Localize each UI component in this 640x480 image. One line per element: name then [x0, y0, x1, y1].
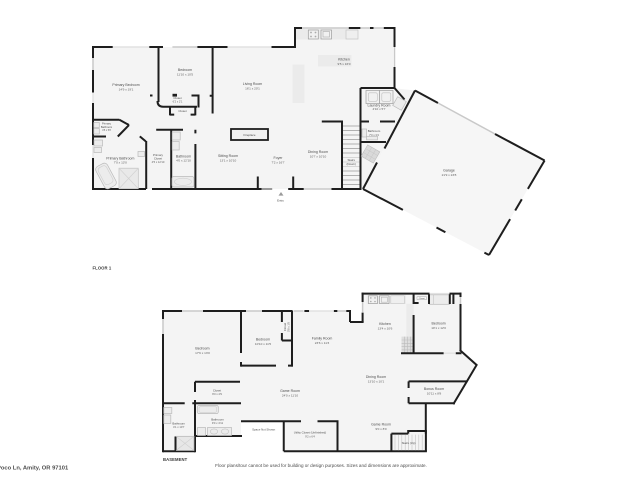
svg-text:Bathroom: Bathroom [211, 417, 224, 421]
svg-text:17'6 x 13'0: 17'6 x 13'0 [195, 351, 210, 355]
svg-text:13'4 x 10'6: 13'4 x 10'6 [378, 327, 393, 331]
svg-text:13'10 x 10'1: 13'10 x 10'1 [368, 380, 385, 384]
svg-text:Floor plans/tour cannot be use: Floor plans/tour cannot be used for buil… [215, 463, 427, 468]
svg-text:Dining Room: Dining Room [366, 375, 386, 379]
svg-text:10'7 x 10'10: 10'7 x 10'10 [310, 155, 327, 159]
svg-text:13'1 x 10'10: 13'1 x 10'10 [220, 159, 237, 163]
svg-text:Sitting Room: Sitting Room [218, 154, 238, 158]
svg-text:Primary Bedroom: Primary Bedroom [112, 83, 139, 87]
svg-text:Closet: Closet [213, 388, 221, 392]
svg-text:Bedroom: Bedroom [195, 347, 209, 351]
svg-text:Kitchen: Kitchen [338, 58, 350, 62]
svg-text:10'10 x 11'5: 10'10 x 11'5 [255, 342, 272, 346]
svg-text:14'9 x 19'1: 14'9 x 19'1 [119, 88, 134, 92]
svg-text:Bonus Room: Bonus Room [424, 387, 444, 391]
svg-text:Bedroom: Bedroom [256, 338, 270, 342]
svg-text:7'2 x 16'7: 7'2 x 16'7 [271, 161, 284, 165]
svg-text:21'9 x 23'8: 21'9 x 23'8 [442, 173, 457, 177]
svg-text:9'0 x 8'0: 9'0 x 8'0 [375, 427, 387, 431]
svg-text:10'11 x 8'8: 10'11 x 8'8 [427, 392, 442, 396]
svg-text:Bathroom: Bathroom [368, 129, 381, 133]
svg-text:Closet: Closet [283, 323, 287, 331]
svg-text:Entry: Entry [277, 199, 284, 203]
svg-text:Bedroom: Bedroom [178, 68, 192, 72]
svg-text:24'0 x 11'10: 24'0 x 11'10 [282, 394, 299, 398]
svg-text:4'10 x 5'7: 4'10 x 5'7 [372, 107, 385, 111]
svg-text:Stairs (Up): Stairs (Up) [402, 441, 416, 445]
svg-text:Bedroom: Bedroom [431, 322, 445, 326]
svg-text:Space Not Shown: Space Not Shown [252, 428, 276, 432]
svg-text:11'10 x 10'5: 11'10 x 10'5 [177, 73, 194, 77]
svg-text:4'0 x 12'10: 4'0 x 12'10 [176, 159, 191, 163]
svg-text:Game Room: Game Room [371, 423, 391, 427]
svg-text:6'2 x 2'1: 6'2 x 2'1 [173, 100, 183, 104]
svg-text:9'2 x 6'4: 9'2 x 6'4 [305, 434, 315, 438]
svg-text:5'8 x 1'8: 5'8 x 1'8 [287, 322, 291, 332]
svg-text:(Down): (Down) [347, 162, 356, 166]
svg-text:10'1 x 12'0: 10'1 x 12'0 [431, 326, 446, 330]
svg-text:Dining Room: Dining Room [308, 150, 328, 154]
svg-text:7'0 x 13'0: 7'0 x 13'0 [114, 160, 127, 164]
svg-text:4'1 x 10'7: 4'1 x 10'7 [173, 425, 185, 429]
svg-text:Fireplace: Fireplace [244, 133, 256, 137]
svg-text:Bathroom: Bathroom [172, 422, 185, 426]
svg-text:7'0 x 3'4: 7'0 x 3'4 [369, 133, 379, 137]
svg-text:Kitchen: Kitchen [379, 322, 391, 326]
svg-text:BASEMENT: BASEMENT [163, 457, 188, 462]
svg-text:Garage: Garage [443, 169, 455, 173]
svg-text:4'5 x 12'10: 4'5 x 12'10 [152, 160, 165, 164]
svg-text:Poco Ln, Amity, OR 97101: Poco Ln, Amity, OR 97101 [0, 466, 69, 472]
svg-text:Closet: Closet [178, 109, 186, 113]
svg-text:9'0 x 4'11: 9'0 x 4'11 [212, 421, 224, 425]
svg-text:Utility Closet (Unfinished): Utility Closet (Unfinished) [294, 431, 326, 435]
svg-text:FLOOR 1: FLOOR 1 [93, 266, 112, 271]
svg-text:Closet: Closet [173, 96, 181, 100]
svg-text:Closet: Closet [419, 297, 425, 300]
svg-text:Living Room: Living Room [243, 82, 263, 86]
svg-text:16'1 x 20'1: 16'1 x 20'1 [245, 87, 260, 91]
svg-text:Family Room: Family Room [312, 337, 333, 341]
svg-text:Game Room: Game Room [280, 389, 300, 393]
svg-text:23'6 x 11'3: 23'6 x 11'3 [315, 341, 330, 345]
svg-text:9'5 x 16'0: 9'5 x 16'0 [337, 62, 350, 66]
svg-text:4'5 x 5'8: 4'5 x 5'8 [102, 129, 111, 132]
svg-text:Closet: Closet [154, 157, 162, 161]
svg-text:Foyer: Foyer [274, 156, 284, 160]
svg-text:9'0 x 4'9: 9'0 x 4'9 [212, 392, 222, 396]
